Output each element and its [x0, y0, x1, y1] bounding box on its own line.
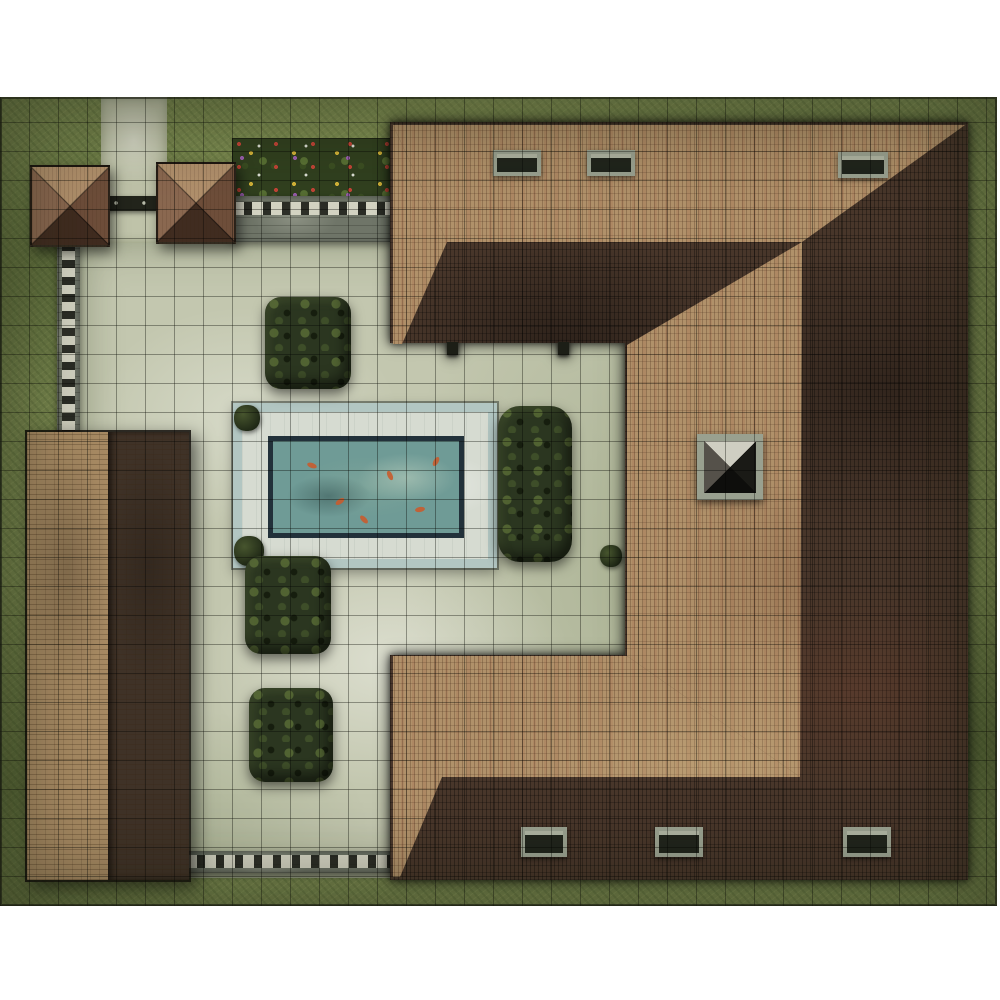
battle-map	[0, 97, 997, 906]
chimney	[697, 434, 763, 500]
koi-fish	[359, 514, 370, 525]
wall-coping	[185, 855, 390, 868]
koi-fish	[334, 497, 345, 507]
wall-coping	[62, 245, 75, 431]
outbuilding-roof-light-slope	[27, 432, 108, 880]
pavilion-roof	[156, 162, 236, 244]
garden-wall-bottom	[183, 851, 392, 873]
garden-gate	[104, 196, 158, 211]
garden-wall-top	[230, 196, 392, 242]
flower-bed	[232, 138, 394, 200]
pavilion-roof	[30, 165, 110, 247]
dormer-window	[655, 827, 703, 857]
page	[0, 0, 1000, 1000]
villa-building	[390, 122, 968, 880]
outbuilding-roof-dark-slope	[108, 432, 189, 880]
dormer-window	[843, 827, 891, 857]
koi-fish	[306, 461, 317, 469]
wall-coping	[232, 202, 390, 215]
hedge-bush	[245, 556, 331, 654]
shrub	[234, 405, 260, 431]
dormer-window	[838, 152, 888, 178]
dormer-window	[587, 150, 635, 176]
hedge-bush	[249, 688, 333, 782]
outbuilding	[25, 430, 191, 882]
garden-wall-left	[57, 243, 80, 433]
porch-post	[558, 342, 569, 355]
dormer-window	[521, 827, 567, 857]
porch-post	[447, 342, 458, 355]
dormer-window	[493, 150, 541, 176]
hedge-bush	[265, 297, 351, 389]
